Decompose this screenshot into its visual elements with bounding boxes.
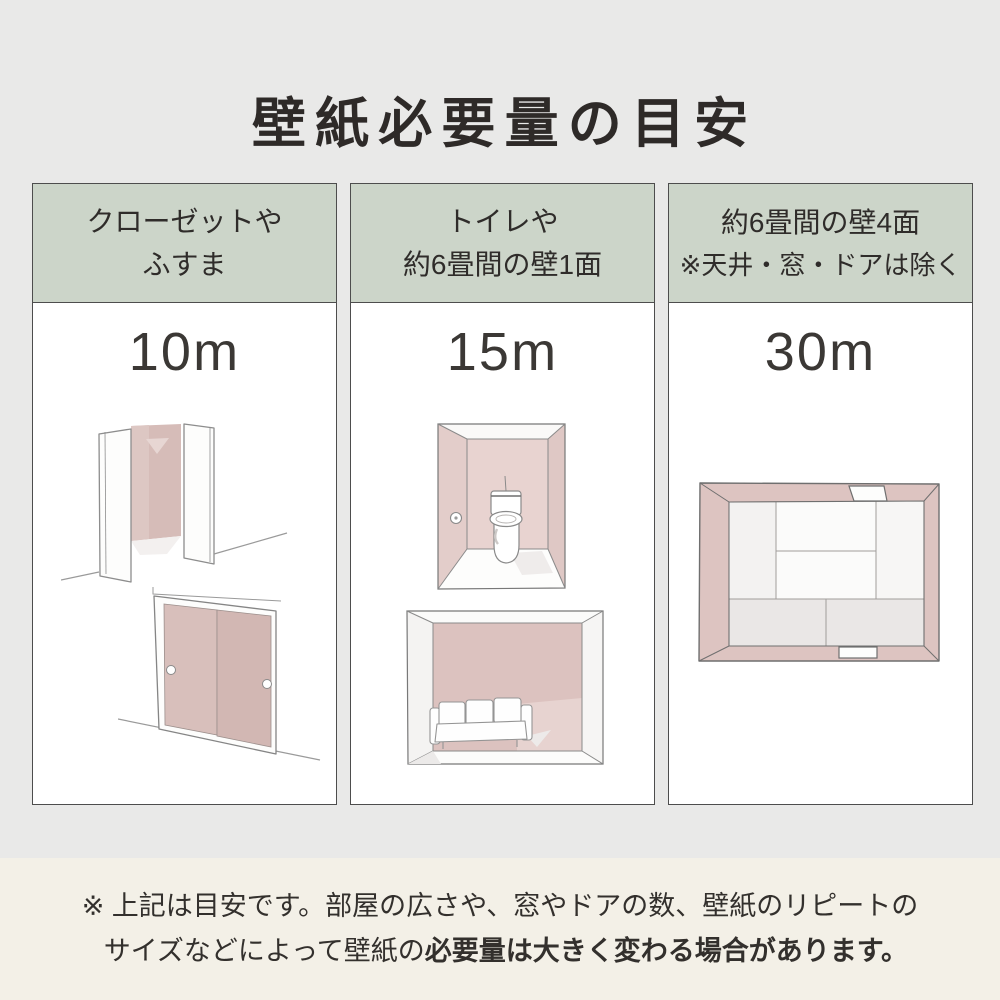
card-six-mat-four-walls: 約6畳間の壁4面 ※天井・窓・ドアは除く 30m xyxy=(668,183,973,805)
open-closet-illustration xyxy=(61,421,291,606)
card-header-line: ふすま xyxy=(142,243,226,286)
card-header-line: トイレや xyxy=(446,200,558,243)
amount-label-30m: 30m xyxy=(669,325,972,379)
card-header-note-line: ※天井・窓・ドアは除く xyxy=(680,245,962,285)
card-header-line: 約6畳間の壁4面 xyxy=(721,201,920,244)
card-header-six-mat-four-walls: 約6畳間の壁4面 ※天井・窓・ドアは除く xyxy=(669,184,972,303)
card-header-closet-fusuma: クローゼットや ふすま xyxy=(33,184,336,303)
card-toilet-one-wall: トイレや 約6畳間の壁1面 15m xyxy=(350,183,655,805)
page-title: 壁紙必要量の目安 xyxy=(0,92,1000,157)
wallpaper-guide-infographic: 壁紙必要量の目安 クローゼットや ふすま 10m xyxy=(0,0,1000,1000)
card-header-line: クローゼットや xyxy=(86,200,282,243)
card-header-toilet-one-wall: トイレや 約6畳間の壁1面 xyxy=(351,184,654,303)
toilet-room-illustration xyxy=(436,415,571,595)
disclaimer-line-2-bold: 必要量は大きく変わる場合があります。 xyxy=(425,936,908,966)
disclaimer-line-2: サイズなどによって壁紙の必要量は大きく変わる場合があります。 xyxy=(82,929,919,974)
amount-label-10m: 10m xyxy=(33,325,336,379)
footer-note-band: ※ 上記は目安です。部屋の広さや、窓やドアの数、壁紙のリピートの サイズなどによ… xyxy=(0,858,1000,1000)
living-room-accent-wall-illustration xyxy=(399,606,609,801)
card-header-line: 約6畳間の壁1面 xyxy=(403,243,602,286)
amount-label-15m: 15m xyxy=(351,325,654,379)
disclaimer-line-2-normal: サイズなどによって壁紙の xyxy=(104,936,425,966)
disclaimer-note: ※ 上記は目安です。部屋の広さや、窓やドアの数、壁紙のリピートの サイズなどによ… xyxy=(82,884,919,973)
card-closet-fusuma: クローゼットや ふすま 10m xyxy=(32,183,337,805)
fusuma-sliding-doors-illustration xyxy=(118,588,328,788)
disclaimer-line-1: ※ 上記は目安です。部屋の広さや、窓やドアの数、壁紙のリピートの xyxy=(82,884,919,929)
guide-columns: クローゼットや ふすま 10m xyxy=(32,183,973,805)
tatami-room-top-view-illustration xyxy=(694,474,949,674)
